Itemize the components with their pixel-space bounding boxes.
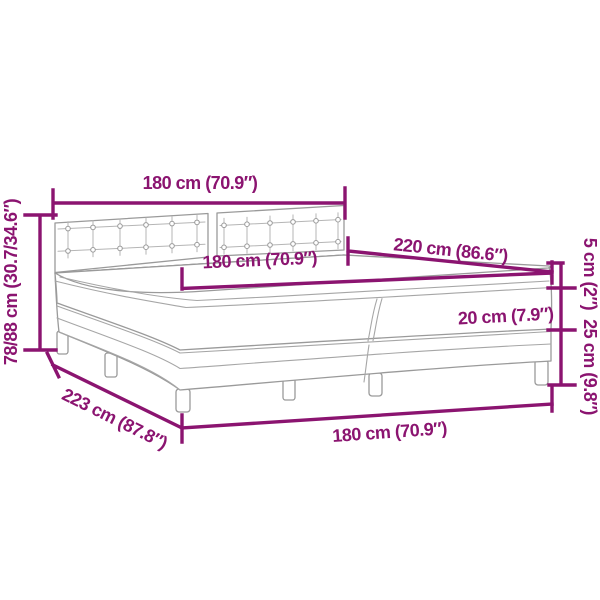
dim-total-height: 78/88 cm (30.7/34.6″) <box>1 198 56 365</box>
dim-label-total-height: 78/88 cm (30.7/34.6″) <box>1 198 21 365</box>
headboard-left-panel <box>55 214 208 273</box>
dim-label-headboard-width: 180 cm (70.9″) <box>143 173 258 193</box>
dim-label-base-width: 180 cm (70.9″) <box>332 418 448 446</box>
leg <box>105 353 117 377</box>
dim-label-base-height: 25 cm (9.8″) <box>580 319 600 415</box>
dim-label-topper-height: 5 cm (2″) <box>580 238 600 311</box>
diagram-canvas: 180 cm (70.9″) 78/88 cm (30.7/34.6″) 220… <box>0 0 600 600</box>
leg <box>176 389 190 412</box>
leg <box>369 373 382 396</box>
leg <box>535 360 548 385</box>
bed-dimension-diagram: 180 cm (70.9″) 78/88 cm (30.7/34.6″) 220… <box>0 0 600 600</box>
dim-base-width: 180 cm (70.9″) <box>182 404 552 446</box>
